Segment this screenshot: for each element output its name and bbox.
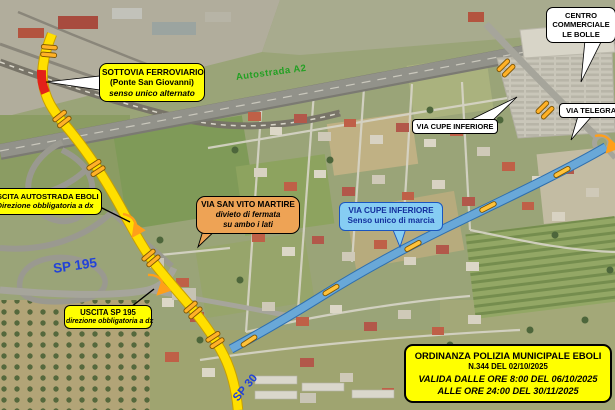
callout-line: Direzione obbligatoria a dx: [0, 201, 99, 210]
callout-line: su ambo i lati: [199, 220, 297, 230]
callout-line: senso unico alternato: [102, 88, 202, 98]
callout-line: direzione obbligatoria a dx: [66, 318, 150, 327]
callout-line: CENTRO: [549, 11, 613, 20]
callout-via-san-vito-martire: VIA SAN VITO MARTIRE divieto di fermata …: [196, 196, 300, 234]
callout-line: VIA CUPE INFERIORE: [342, 206, 440, 216]
callout-line: VIA TELEGRAFO: [566, 106, 615, 115]
callout-line: LE BOLLE: [549, 30, 613, 39]
ordinance-title: ORDINANZA POLIZIA MUNICIPALE EBOLI: [408, 350, 608, 362]
callout-centro-commerciale: CENTRO COMMERCIALE LE BOLLE: [546, 7, 615, 43]
callout-uscita-sp195: USCITA SP 195 direzione obbligatoria a d…: [64, 305, 152, 329]
callout-via-cupe-inferiore-oneway: VIA CUPE INFERIORE Senso unico di marcia: [339, 202, 443, 231]
ordinance-validity-start: VALIDA DALLE ORE 8:00 DEL 06/10/2025: [408, 374, 608, 386]
ordinance-number: N.344 DEL 02/10/2025: [408, 362, 608, 372]
ordinance-box: ORDINANZA POLIZIA MUNICIPALE EBOLI N.344…: [404, 344, 612, 403]
callout-via-telegrafo: VIA TELEGRAFO: [559, 103, 615, 118]
callout-line: USCITA SP 195: [66, 308, 150, 318]
callout-via-cupe-inferiore-name: VIA CUPE INFERIORE: [412, 119, 498, 134]
callout-line: (Ponte San Giovanni): [102, 77, 202, 87]
callout-line: VIA SAN VITO MARTIRE: [199, 200, 297, 210]
callout-line: COMMERCIALE: [549, 20, 613, 29]
callout-line: USCITA AUTOSTRADA EBOLI: [0, 192, 99, 201]
callout-line: divieto di fermata: [199, 210, 297, 220]
callout-sottovia-ferroviario: SOTTOVIA FERROVIARIO (Ponte San Giovanni…: [99, 63, 205, 102]
callout-uscita-autostrada-eboli: USCITA AUTOSTRADA EBOLI Direzione obblig…: [0, 188, 102, 215]
callout-line: VIA CUPE INFERIORE: [413, 122, 497, 131]
ordinance-validity-end: ALLE ORE 24:00 DEL 30/11/2025: [408, 386, 608, 398]
callout-line: SOTTOVIA FERROVIARIO: [102, 67, 202, 77]
closed-segment-red: [41, 70, 45, 93]
map-stage: SOTTOVIA FERROVIARIO (Ponte San Giovanni…: [0, 0, 615, 410]
callout-line: Senso unico di marcia: [342, 216, 440, 226]
